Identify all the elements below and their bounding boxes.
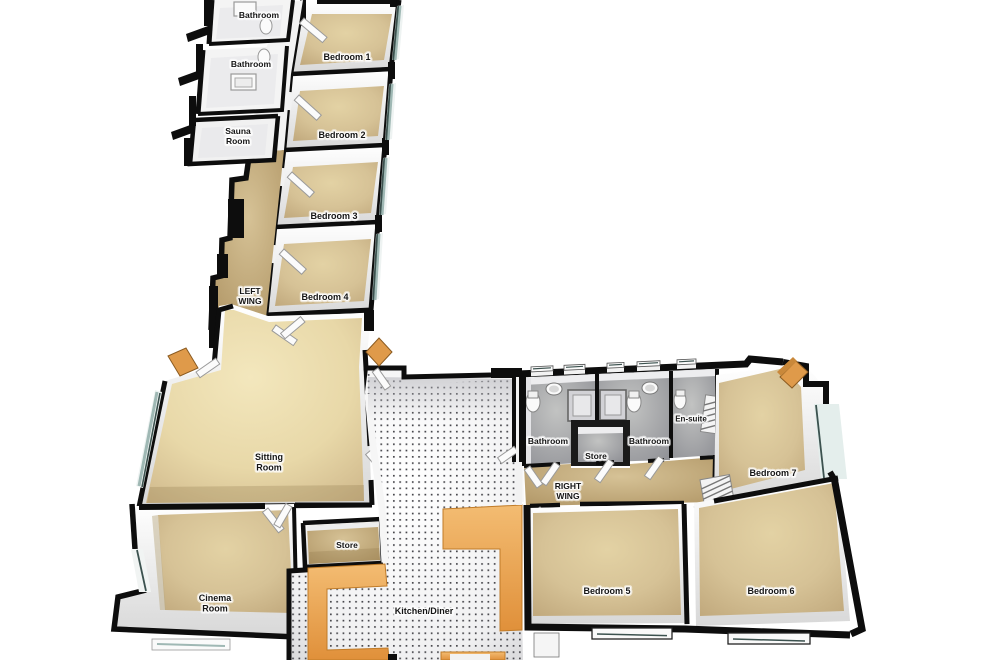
svg-text:Bedroom 1: Bedroom 1 xyxy=(323,52,370,62)
svg-text:Bathroom: Bathroom xyxy=(629,436,670,446)
svg-text:Bathroom: Bathroom xyxy=(528,436,569,446)
svg-text:Bedroom 6: Bedroom 6 xyxy=(747,586,794,596)
svg-text:Kitchen/Diner: Kitchen/Diner xyxy=(395,606,454,616)
svg-text:Sitting: Sitting xyxy=(255,452,283,462)
svg-text:Room: Room xyxy=(226,136,251,146)
svg-text:Cinema: Cinema xyxy=(199,593,233,603)
svg-text:Bedroom 2: Bedroom 2 xyxy=(318,130,365,140)
svg-text:Bathroom: Bathroom xyxy=(231,59,272,69)
svg-text:WING: WING xyxy=(556,491,580,501)
svg-text:Bedroom 3: Bedroom 3 xyxy=(310,211,357,221)
svg-text:Bedroom 5: Bedroom 5 xyxy=(583,586,630,596)
svg-text:Bedroom 7: Bedroom 7 xyxy=(749,468,796,478)
svg-text:Sauna: Sauna xyxy=(225,126,251,136)
svg-text:Room: Room xyxy=(202,603,228,613)
svg-text:Bedroom 4: Bedroom 4 xyxy=(301,292,348,302)
svg-text:Store: Store xyxy=(336,540,358,550)
svg-text:RIGHT: RIGHT xyxy=(555,481,582,491)
svg-text:En-suite: En-suite xyxy=(675,415,707,424)
svg-text:Store: Store xyxy=(585,451,607,461)
svg-text:Room: Room xyxy=(256,462,282,472)
svg-text:WING: WING xyxy=(238,296,262,306)
svg-text:LEFT: LEFT xyxy=(239,286,261,296)
svg-text:Bathroom: Bathroom xyxy=(239,10,280,20)
